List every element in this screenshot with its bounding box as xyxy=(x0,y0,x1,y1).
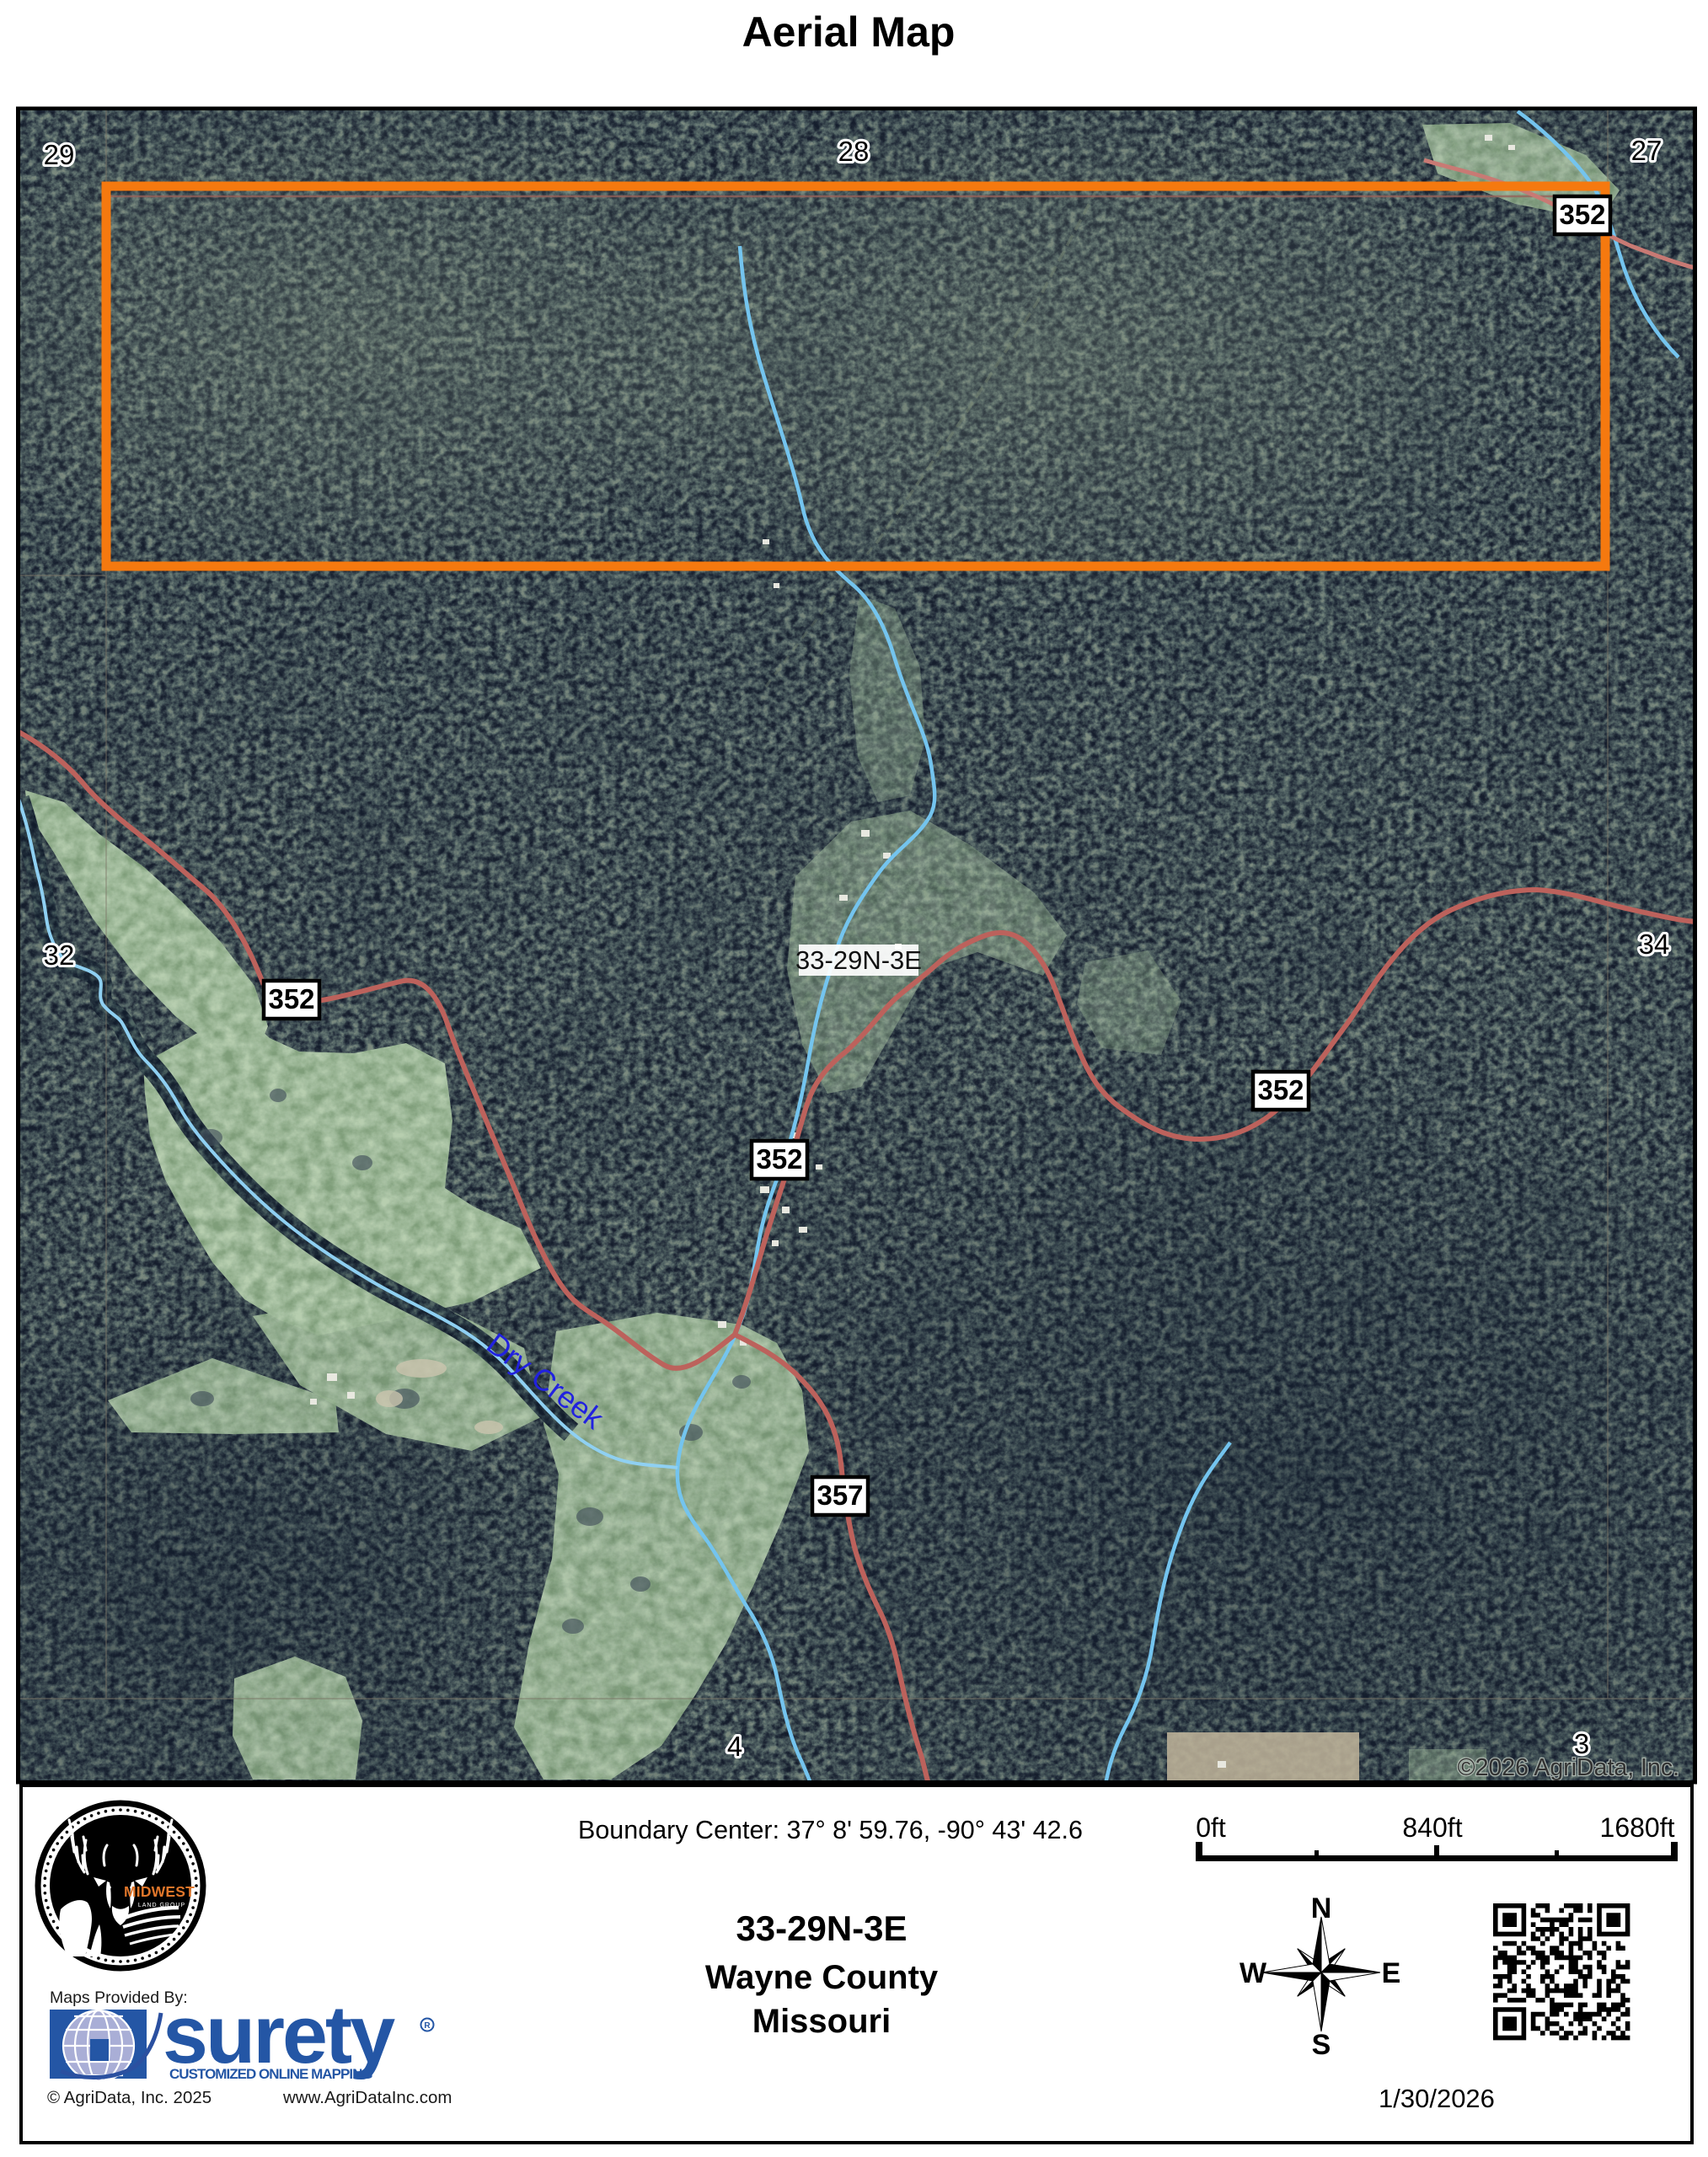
svg-text:32: 32 xyxy=(44,939,75,971)
svg-text:© AgriData, Inc. 2025: © AgriData, Inc. 2025 xyxy=(47,2088,211,2107)
svg-text:www.AgriDataInc.com: www.AgriDataInc.com xyxy=(282,2088,452,2107)
svg-text:MIDWEST: MIDWEST xyxy=(124,1883,195,1900)
svg-text:Missouri: Missouri xyxy=(752,2003,891,2040)
svg-text:Wayne County: Wayne County xyxy=(705,1959,939,1996)
svg-text:CUSTOMIZED ONLINE MAPPING: CUSTOMIZED ONLINE MAPPING xyxy=(169,2066,373,2082)
svg-text:S: S xyxy=(1312,2029,1331,2061)
svg-text:352: 352 xyxy=(756,1143,802,1175)
svg-text:840ft: 840ft xyxy=(1402,1812,1462,1843)
svg-text:352: 352 xyxy=(1559,199,1605,230)
svg-text:28: 28 xyxy=(838,136,870,167)
svg-text:33-29N-3E: 33-29N-3E xyxy=(795,945,922,975)
svg-text:Boundary Center: 37° 8' 59.76,: Boundary Center: 37° 8' 59.76, -90° 43' … xyxy=(578,1816,1083,1844)
svg-text:1/30/2026: 1/30/2026 xyxy=(1379,2084,1495,2113)
svg-text:33-29N-3E: 33-29N-3E xyxy=(736,1908,907,1948)
svg-text:352: 352 xyxy=(268,983,314,1014)
svg-text:1680ft: 1680ft xyxy=(1600,1812,1675,1843)
svg-text:Aerial Map: Aerial Map xyxy=(742,8,956,56)
svg-text:4: 4 xyxy=(727,1731,742,1762)
svg-text:©2026 AgriData, Inc.: ©2026 AgriData, Inc. xyxy=(1458,1754,1679,1781)
svg-text:357: 357 xyxy=(817,1480,863,1511)
svg-text:352: 352 xyxy=(1257,1074,1304,1105)
svg-text:LAND GROUP: LAND GROUP xyxy=(138,1903,185,1908)
svg-text:R: R xyxy=(424,2021,431,2031)
svg-text:29: 29 xyxy=(44,139,75,170)
svg-text:W: W xyxy=(1240,1957,1267,1989)
svg-text:0ft: 0ft xyxy=(1196,1812,1226,1843)
svg-text:34: 34 xyxy=(1639,929,1670,960)
svg-text:E: E xyxy=(1382,1957,1401,1989)
svg-text:27: 27 xyxy=(1631,135,1662,166)
svg-text:N: N xyxy=(1311,1892,1332,1924)
